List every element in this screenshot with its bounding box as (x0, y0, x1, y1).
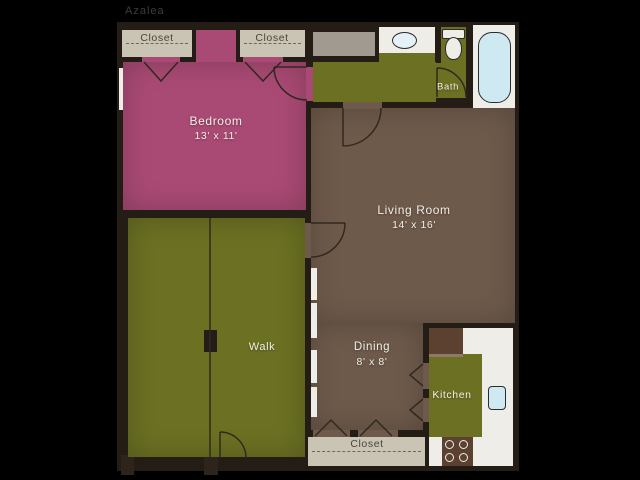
refrigerator (429, 328, 463, 357)
bedroom-window (119, 68, 123, 110)
floor-plan: Azalea (0, 0, 640, 480)
sliding-door-panel (311, 387, 317, 417)
bathtub (478, 32, 511, 103)
stove-burner (445, 440, 454, 449)
closet-tl-opening (142, 57, 180, 62)
closet-top-right-label: Closet (255, 32, 288, 44)
kitchen-opening (423, 398, 429, 422)
sliding-door-panel (311, 350, 317, 383)
utility-closet-floor (313, 32, 375, 56)
closet-bottom-label: Closet (350, 438, 383, 450)
hallway-floor (313, 62, 436, 102)
living-room-dims: 14' x 16' (392, 219, 436, 231)
plan-title: Azalea (125, 5, 165, 17)
closet-bottom-opening (313, 430, 350, 437)
living-room-door-opening (343, 102, 382, 109)
sliding-door-panel (311, 268, 317, 300)
bathroom-sink-basin (392, 32, 417, 49)
wall-post (121, 455, 134, 475)
kitchen-sink (488, 386, 506, 410)
stove-burner (459, 453, 468, 462)
bedroom-door-opening (306, 67, 313, 101)
bedroom-dims: 13' x 11' (194, 130, 237, 142)
toilet-bowl (445, 37, 462, 60)
kitchen-label: Kitchen (432, 389, 471, 401)
bedroom-alcove-floor (196, 30, 236, 64)
dining-label: Dining (354, 341, 390, 353)
bedroom-label: Bedroom (190, 114, 243, 128)
kitchen-opening (423, 363, 429, 389)
hallway-floor-under-sink (379, 53, 435, 62)
sliding-door-panel (311, 303, 317, 338)
walk-label: Walk (249, 341, 275, 353)
bath-label: Bath (437, 82, 459, 93)
closet-bottom-opening (358, 430, 398, 437)
stove (442, 437, 473, 466)
walk-door-opening (305, 223, 311, 258)
dining-dims: 8' x 8' (357, 356, 388, 368)
dining-floor (311, 323, 423, 430)
bath-wall-stub (435, 27, 441, 63)
stove-burner (445, 453, 454, 462)
stove-burner (459, 440, 468, 449)
closet-top-left-label: Closet (140, 32, 173, 44)
closet-tr-opening (243, 57, 283, 62)
closet-dashed-line (312, 451, 421, 452)
wall-post (204, 457, 218, 475)
walk-divider-handle (204, 330, 217, 352)
living-room-label: Living Room (377, 203, 450, 217)
